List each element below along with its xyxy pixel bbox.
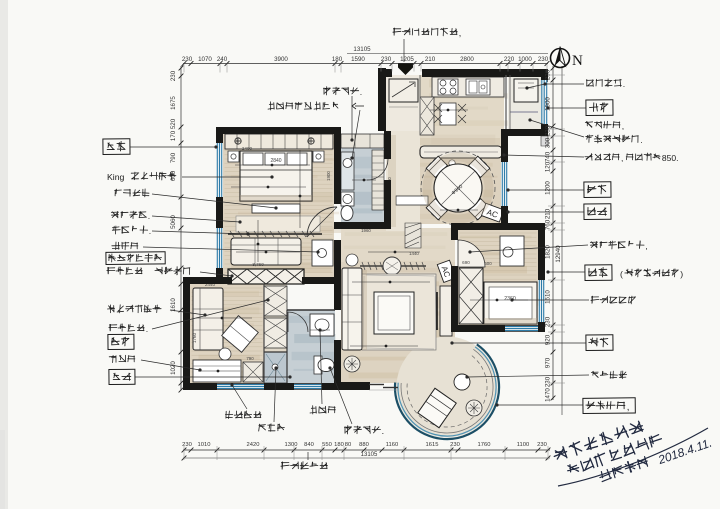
svg-text:220: 220 <box>504 56 515 63</box>
svg-text:230: 230 <box>182 56 193 63</box>
svg-text:.: . <box>360 87 362 97</box>
svg-text:1020: 1020 <box>170 361 177 375</box>
svg-text:13105: 13105 <box>353 46 371 53</box>
svg-text:740: 740 <box>545 151 552 162</box>
svg-text:210: 210 <box>425 56 436 63</box>
svg-text:,: , <box>627 402 630 413</box>
svg-text:790: 790 <box>170 152 177 163</box>
svg-text:(: ( <box>620 269 623 279</box>
svg-text:240: 240 <box>217 56 228 63</box>
svg-text:230: 230 <box>381 56 392 63</box>
svg-text:.: . <box>623 79 625 89</box>
svg-text:2800: 2800 <box>460 56 474 63</box>
svg-text:12940: 12940 <box>555 245 562 263</box>
svg-text:,: , <box>622 121 624 131</box>
svg-text:850.: 850. <box>662 153 679 163</box>
svg-text:550: 550 <box>322 442 332 448</box>
svg-text:1440: 1440 <box>409 251 419 256</box>
svg-text:600: 600 <box>484 261 492 266</box>
svg-text:,: , <box>621 153 623 163</box>
svg-text:King: King <box>107 172 125 182</box>
svg-text:1070: 1070 <box>198 56 212 63</box>
svg-text:1760: 1760 <box>192 332 197 343</box>
svg-text:1205: 1205 <box>400 56 414 63</box>
svg-text:760: 760 <box>545 219 552 230</box>
svg-text:970: 970 <box>545 357 552 368</box>
svg-text:1820: 1820 <box>545 245 552 259</box>
svg-text:2400: 2400 <box>242 146 253 151</box>
svg-text:210: 210 <box>545 208 552 219</box>
svg-text:230: 230 <box>545 316 552 327</box>
svg-text:230: 230 <box>545 69 552 80</box>
svg-text:1200: 1200 <box>545 181 552 195</box>
svg-text:300: 300 <box>545 137 552 148</box>
svg-text:180: 180 <box>332 56 343 63</box>
svg-text:230: 230 <box>537 442 547 448</box>
svg-text:230: 230 <box>538 56 549 63</box>
svg-text:2840: 2840 <box>270 158 281 164</box>
svg-text:230: 230 <box>450 442 460 448</box>
svg-text:1610: 1610 <box>545 290 552 304</box>
svg-text:5060: 5060 <box>170 215 177 229</box>
svg-text:3900: 3900 <box>274 56 288 63</box>
svg-text:520: 520 <box>170 118 177 129</box>
svg-text:,: , <box>645 241 647 251</box>
svg-text:120: 120 <box>545 161 552 172</box>
svg-text:1300: 1300 <box>285 442 298 448</box>
svg-text:230: 230 <box>545 125 552 136</box>
svg-text:,: , <box>459 28 461 38</box>
svg-text:.: . <box>148 211 150 221</box>
svg-text:170: 170 <box>170 130 177 141</box>
svg-text:1000: 1000 <box>518 56 532 63</box>
svg-text:840: 840 <box>304 442 314 448</box>
svg-text:790: 790 <box>246 356 254 361</box>
svg-text:180: 180 <box>334 442 344 448</box>
svg-text:13105: 13105 <box>361 452 378 458</box>
svg-text:2420: 2420 <box>247 442 260 448</box>
svg-text:1590: 1590 <box>351 56 365 63</box>
svg-text:1675: 1675 <box>170 96 177 110</box>
svg-text:230: 230 <box>545 376 552 387</box>
svg-text:.: . <box>640 135 642 145</box>
svg-text:.: . <box>146 324 148 334</box>
svg-text:880: 880 <box>359 442 369 448</box>
svg-text:1610: 1610 <box>170 298 177 312</box>
svg-text:2360: 2360 <box>504 296 516 302</box>
svg-text:1470: 1470 <box>545 388 552 402</box>
svg-text:1615: 1615 <box>426 442 439 448</box>
svg-text:1010: 1010 <box>198 442 211 448</box>
svg-text:230: 230 <box>182 442 192 448</box>
svg-text:80: 80 <box>345 442 351 448</box>
svg-text:1900: 1900 <box>326 171 331 181</box>
svg-text:3,760: 3,760 <box>252 262 264 267</box>
svg-text:920: 920 <box>545 334 552 345</box>
svg-text:690: 690 <box>462 260 470 265</box>
svg-text:230: 230 <box>170 70 177 81</box>
svg-text:.: . <box>149 226 151 236</box>
svg-text:1100: 1100 <box>517 442 529 448</box>
svg-text:): ) <box>680 269 683 279</box>
svg-text:N: N <box>572 53 583 69</box>
svg-text:1760: 1760 <box>478 442 491 448</box>
svg-text:1160: 1160 <box>386 442 398 448</box>
svg-text:.: . <box>382 426 384 436</box>
